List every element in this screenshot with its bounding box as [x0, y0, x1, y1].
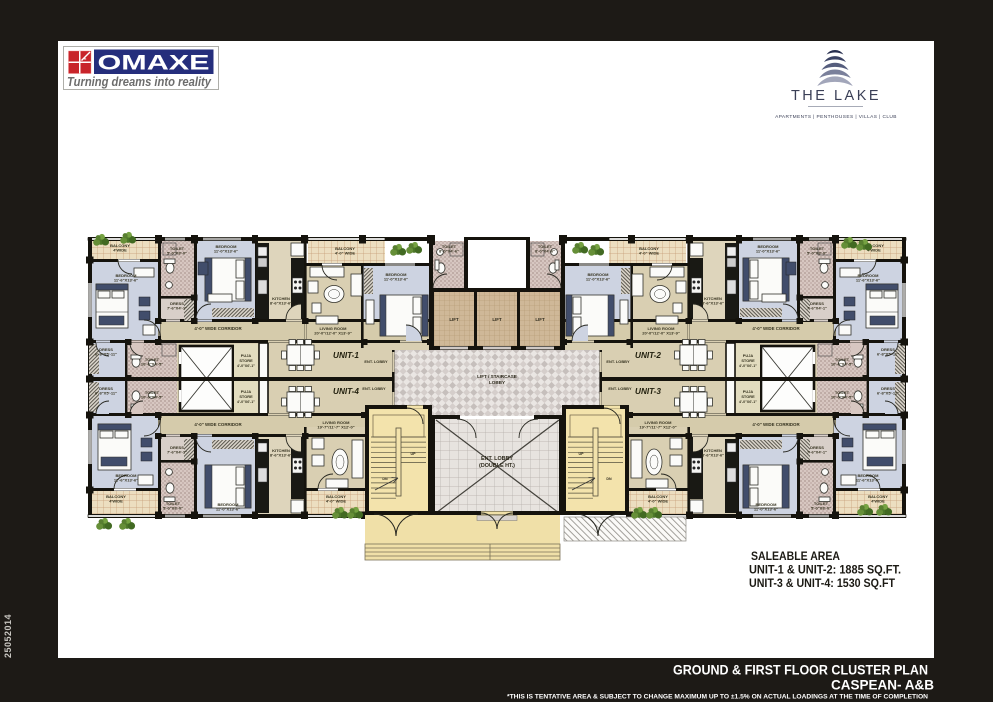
svg-text:4'-0" WIDE CORRIDOR: 4'-0" WIDE CORRIDOR — [194, 422, 242, 427]
svg-text:19'-7"/11'-7" X12'-0": 19'-7"/11'-7" X12'-0" — [639, 425, 676, 430]
svg-text:11'-6"X13'-6": 11'-6"X13'-6" — [114, 278, 138, 283]
svg-text:4'-0" WIDE CORRIDOR: 4'-0" WIDE CORRIDOR — [752, 422, 800, 427]
svg-text:LIFT: LIFT — [449, 317, 459, 322]
svg-text:7'-6"X4'-1": 7'-6"X4'-1" — [807, 450, 827, 455]
svg-text:11'-6"X13'-6": 11'-6"X13'-6" — [856, 478, 880, 483]
svg-text:4'WIDE: 4'WIDE — [113, 248, 127, 253]
svg-text:ENT. LOBBY: ENT. LOBBY — [481, 456, 513, 462]
svg-text:4'-0" WIDE: 4'-0" WIDE — [326, 499, 347, 504]
svg-text:STORE: STORE — [239, 394, 253, 399]
svg-text:5'-0"X8'-0": 5'-0"X8'-0" — [811, 506, 831, 511]
svg-text:ENT. LOBBY: ENT. LOBBY — [364, 359, 388, 364]
svg-text:5'-0"X8'-0": 5'-0"X8'-0" — [163, 506, 183, 511]
svg-text:UNIT-3 & UNIT-4: 1530 SQ.FT: UNIT-3 & UNIT-4: 1530 SQ.FT — [749, 578, 895, 590]
svg-text:LIFT / STAIRCASE: LIFT / STAIRCASE — [477, 374, 517, 379]
svg-text:6'-8"X5'-11": 6'-8"X5'-11" — [95, 391, 117, 396]
svg-text:(DOUBLE HT.): (DOUBLE HT.) — [479, 463, 515, 469]
svg-text:GROUND & FIRST FLOOR CLUSTER P: GROUND & FIRST FLOOR CLUSTER PLAN — [673, 663, 928, 678]
svg-text:11'-0"X13'-6": 11'-0"X13'-6" — [214, 249, 238, 254]
svg-text:25052014: 25052014 — [3, 614, 13, 658]
svg-text:Turning dreams into reality: Turning dreams into reality — [67, 74, 212, 89]
svg-text:11'-0"X13'-6": 11'-0"X13'-6" — [384, 277, 408, 282]
svg-text:11'-6"X13'-6": 11'-6"X13'-6" — [856, 278, 880, 283]
svg-text:8'-6"X13'-6": 8'-6"X13'-6" — [270, 453, 292, 458]
svg-text:8'-0"X4'-6": 8'-0"X4'-6" — [439, 249, 459, 254]
svg-text:8'-0"X4'-6": 8'-0"X4'-6" — [535, 249, 555, 254]
svg-text:UNIT-1: UNIT-1 — [333, 351, 359, 360]
svg-text:LOBBY: LOBBY — [489, 380, 505, 385]
svg-text:DN: DN — [382, 477, 388, 481]
svg-text:10'-0"X4'-5": 10'-0"X4'-5" — [831, 395, 853, 400]
svg-text:5'-0"X8'-0": 5'-0"X8'-0" — [167, 251, 187, 256]
svg-text:5'-0"X8'-0": 5'-0"X8'-0" — [807, 251, 827, 256]
svg-text:UNIT-3: UNIT-3 — [635, 387, 661, 396]
svg-text:4'-0" WIDE: 4'-0" WIDE — [639, 251, 660, 256]
svg-text:6'-8"X5'-11": 6'-8"X5'-11" — [877, 391, 899, 396]
svg-text:4'-0"X6'-1": 4'-0"X6'-1" — [739, 400, 757, 404]
svg-text:4'-0" WIDE CORRIDOR: 4'-0" WIDE CORRIDOR — [752, 326, 800, 331]
svg-text:4'WIDE: 4'WIDE — [871, 499, 885, 504]
svg-text:STORE: STORE — [741, 358, 755, 363]
svg-text:11'-0"X13'-6": 11'-0"X13'-6" — [586, 277, 610, 282]
svg-text:STORE: STORE — [741, 394, 755, 399]
svg-text:6'-8"X5'-11": 6'-8"X5'-11" — [877, 352, 899, 357]
svg-text:7'-6"X4'-1": 7'-6"X4'-1" — [807, 306, 827, 311]
svg-text:4'-0" WIDE: 4'-0" WIDE — [335, 251, 356, 256]
svg-text:10'-0"X4'-5": 10'-0"X4'-5" — [141, 395, 163, 400]
svg-text:UNIT-4: UNIT-4 — [333, 387, 359, 396]
svg-text:20'-0"/12'-0" X13'-9": 20'-0"/12'-0" X13'-9" — [642, 331, 680, 336]
svg-text:DN: DN — [606, 477, 612, 481]
svg-text:LIFT: LIFT — [492, 317, 502, 322]
svg-text:4'WIDE: 4'WIDE — [109, 499, 123, 504]
svg-text:11'-0"X13'-6": 11'-0"X13'-6" — [216, 507, 240, 512]
svg-text:UNIT-1 & UNIT-2: 1885 SQ.FT.: UNIT-1 & UNIT-2: 1885 SQ.FT. — [749, 565, 901, 577]
svg-text:THE LAKE: THE LAKE — [791, 88, 881, 104]
svg-text:8'-6"X13'-6": 8'-6"X13'-6" — [702, 301, 724, 306]
svg-text:7'-6"X4'-1": 7'-6"X4'-1" — [167, 306, 187, 311]
svg-text:CASPEAN- A&B: CASPEAN- A&B — [831, 677, 934, 693]
svg-text:ENT. LOBBY: ENT. LOBBY — [606, 359, 630, 364]
svg-text:20'-0"/12'-0" X13'-9": 20'-0"/12'-0" X13'-9" — [314, 331, 352, 336]
svg-text:8'-6"X13'-6": 8'-6"X13'-6" — [270, 301, 292, 306]
svg-text:4'-0" WIDE: 4'-0" WIDE — [648, 499, 669, 504]
svg-text:SALEABLE AREA: SALEABLE AREA — [751, 551, 840, 563]
svg-text:OMAXE: OMAXE — [98, 51, 210, 75]
svg-text:UP: UP — [579, 452, 585, 456]
svg-text:APARTMENTS | PENTHOUSES | VILL: APARTMENTS | PENTHOUSES | VILLAS | CLUB — [775, 114, 897, 120]
svg-text:4'-0"X6'-1": 4'-0"X6'-1" — [739, 364, 757, 368]
svg-text:4'-0" WIDE CORRIDOR: 4'-0" WIDE CORRIDOR — [194, 326, 242, 331]
svg-text:11'-0"X13'-6": 11'-0"X13'-6" — [756, 249, 780, 254]
svg-text:UNIT-2: UNIT-2 — [635, 351, 661, 360]
svg-text:*THIS IS TENTATIVE AREA & SUBJ: *THIS IS TENTATIVE AREA & SUBJECT TO CHA… — [507, 694, 928, 701]
svg-text:8'-6"X13'-6": 8'-6"X13'-6" — [702, 453, 724, 458]
svg-text:19'-7"/11'-7" X12'-0": 19'-7"/11'-7" X12'-0" — [317, 425, 354, 430]
svg-text:7'-6"X4'-1": 7'-6"X4'-1" — [167, 450, 187, 455]
svg-text:11'-0"X13'-6": 11'-0"X13'-6" — [754, 507, 778, 512]
svg-text:10'-0"X4'-5": 10'-0"X4'-5" — [141, 362, 163, 367]
svg-text:LIFT: LIFT — [535, 317, 545, 322]
svg-text:10'-0"X4'-5": 10'-0"X4'-5" — [831, 362, 853, 367]
svg-text:11'-6"X13'-6": 11'-6"X13'-6" — [114, 478, 138, 483]
svg-text:4'-0"X6'-1": 4'-0"X6'-1" — [237, 364, 255, 368]
svg-text:STORE: STORE — [239, 358, 253, 363]
svg-text:ENT. LOBBY: ENT. LOBBY — [362, 386, 386, 391]
svg-text:UP: UP — [411, 452, 417, 456]
svg-text:6'-8"X5'-11": 6'-8"X5'-11" — [95, 352, 117, 357]
svg-text:ENT. LOBBY: ENT. LOBBY — [608, 386, 632, 391]
svg-text:4'-0"X6'-1": 4'-0"X6'-1" — [237, 400, 255, 404]
